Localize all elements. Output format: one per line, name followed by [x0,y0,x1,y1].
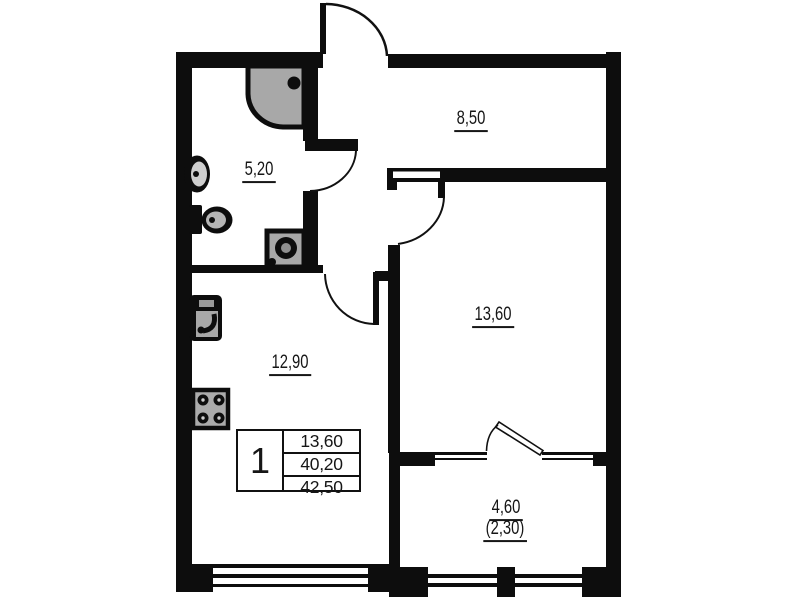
stove-burner-4-dot [217,416,220,419]
bathroom-door-arc [310,151,356,191]
balcony-window-right-line2 [542,458,593,460]
shower-drain-icon [288,77,301,90]
kitchen-fixtures [189,295,228,428]
door-opening-slot [393,172,440,179]
livingroom-door-arc [398,197,444,244]
bathroom-door-leaf [305,139,358,151]
washing-machine-knob [268,258,276,266]
apartment-summary-table: 1 13,60 40,20 42,50 [236,429,361,492]
summary-area-no-balcony: 40,20 [284,452,359,475]
balcony-window-right-line1 [542,452,593,455]
toilet-tank [189,205,202,234]
kitchen-sink-faucet [199,300,214,307]
kitchen-door-leaf [373,272,379,325]
kitchen-window [213,568,368,592]
toilet-drain-icon [209,217,215,223]
rooms-count: 1 [238,431,284,490]
wall-balcony-bottom-left [389,567,428,597]
balcony-rail-left-line2 [428,583,497,587]
wall-right [606,52,621,597]
entrance-door-arc [326,4,387,56]
summary-areas: 13,60 40,20 42,50 [284,431,359,490]
floor-plan-drawing [0,0,799,600]
wall-hall-jamb [387,182,397,190]
stove-burner-2-dot [217,398,220,401]
stove-burner-1-dot [201,398,204,401]
livingroom-door-leaf [438,182,445,198]
balcony-rail-right-line2 [515,583,582,587]
area-label-bathroom: 5,20 [242,159,276,183]
balcony-rail-right-line1 [515,574,582,578]
wall-balcony-bottom-mid [497,567,515,597]
washbasin-drain-icon [193,171,199,177]
area-label-kitchen: 12,90 [269,352,311,376]
kitchen-window-line1 [213,574,368,578]
balcony-door-leaf [496,422,544,455]
stove-burner-3-dot [201,416,204,419]
stove [193,390,228,428]
shower [248,66,304,127]
balcony-window-left-line1 [435,452,487,455]
wall-top-right [388,54,608,68]
floor-plan: 5,20 8,50 13,60 12,90 4,60 (2,30) 1 13,6… [0,0,799,600]
wall-balcony-top-left [389,452,435,466]
balcony-rail-left-line1 [428,574,497,578]
washing-machine-drum-center [281,243,291,253]
area-label-hallway: 8,50 [454,108,488,132]
walls [176,52,621,597]
entrance-door-leaf [320,3,326,54]
wall-balcony-top-right [593,452,607,466]
kitchen-window-line2 [213,584,368,587]
balcony-door-arc [487,425,499,451]
summary-living-area: 13,60 [284,431,359,452]
area-label-balcony-reduced: (2,30) [483,518,526,542]
balcony-window-left-line2 [435,458,487,460]
kitchen-door-arc [325,274,374,324]
area-label-living-room: 13,60 [472,304,514,328]
summary-total-area: 42,50 [284,475,359,498]
doors [305,3,543,455]
kitchen-sink-drain-icon [198,327,205,334]
wall-balcony-bottom-right [582,567,621,597]
